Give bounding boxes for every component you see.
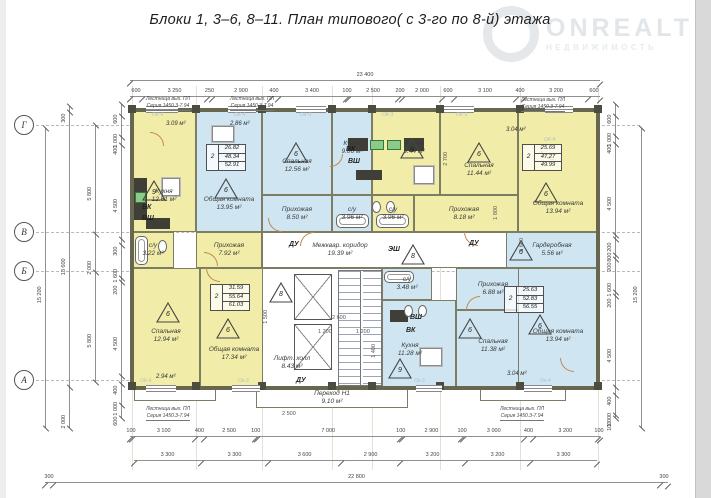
inner-dimension-label: 1 200 bbox=[356, 330, 370, 336]
dimension-label: 13 600 bbox=[62, 258, 68, 275]
dimension-label: 3 200 bbox=[426, 453, 440, 459]
shaft-tag: ДУ bbox=[289, 241, 299, 248]
dimension-label: 3 300 bbox=[228, 453, 242, 459]
fixture-win bbox=[524, 385, 552, 392]
dimension-label: 3 400 bbox=[305, 89, 319, 95]
dimension-label: 23 400 bbox=[357, 73, 374, 79]
window-mark-tag: ОК-3 bbox=[382, 113, 393, 118]
shaft-tag: ВШ bbox=[348, 158, 360, 165]
dimension-label: 5 800 bbox=[88, 334, 94, 348]
fixture-win bbox=[232, 385, 260, 392]
inner-dimension-label: 2 600 bbox=[332, 316, 346, 322]
shaft-tag: ВК bbox=[346, 146, 355, 153]
window-mark-tag: ОК-4 bbox=[544, 138, 555, 143]
dimension-label: 4 500 bbox=[608, 197, 614, 211]
apartment-number-triangle: 8 bbox=[269, 282, 293, 303]
apartment-number-triangle: 6 bbox=[214, 178, 238, 199]
room-label-su-396b: с/у3.96 м² bbox=[382, 205, 403, 221]
room-label-su-396a: с/у3.96 м² bbox=[341, 205, 362, 221]
grid-axis-В: В bbox=[14, 222, 34, 242]
window-mark-tag: ОК-3 bbox=[456, 113, 467, 118]
inner-dimension-label: 2 500 bbox=[282, 412, 296, 418]
stair-series-note: Лестница вых. ПЛСерия 1450.3-7.94 bbox=[500, 406, 544, 421]
room-label-perehod-910: Переход Н19.10 м² bbox=[314, 390, 350, 406]
plan-canvas: ГВБАКухня12.61 м²Общая комната13.95 м²Сп… bbox=[0, 0, 711, 498]
room-label-hall-818: Прихожая8.18 м² bbox=[449, 205, 479, 221]
dimension-column: 15 200 bbox=[36, 128, 46, 428]
apartment-number-triangle: 6 bbox=[467, 142, 491, 163]
apartment-number-triangle: 6 bbox=[284, 142, 308, 163]
drawing-sheet: Блоки 1, 3–6, 8–11. План типового( с 3-г… bbox=[0, 0, 711, 498]
shaft-tag: ВК bbox=[142, 204, 151, 211]
dimension-label: 600 bbox=[589, 89, 598, 95]
stair-series-note: Лестница вых. ПЛСерия 1450.3-7.94 bbox=[146, 406, 190, 421]
fixture-table bbox=[420, 348, 442, 366]
room-label-hall-850: Прихожая8.50 м² bbox=[282, 205, 312, 221]
dimension-label: 5 800 bbox=[88, 187, 94, 201]
fixture-sink bbox=[387, 140, 401, 150]
room-label-corridor-1939: Межквар. коридор19.39 м² bbox=[312, 242, 367, 258]
dimension-column: 5 8002 0005 800 bbox=[86, 125, 96, 382]
wall-pier bbox=[328, 105, 336, 113]
dimension-row: 1003 1004002 5001007 0001002 9001003 000… bbox=[130, 428, 600, 437]
stair-series-note: Лестница вых. ПЛСерия 1450.3-7.94 bbox=[230, 96, 274, 111]
grid-axis-Г: Г bbox=[14, 115, 34, 135]
dimension-label: 600 bbox=[131, 89, 140, 95]
fixture-elevator bbox=[294, 274, 332, 320]
dimension-label: 3 300 bbox=[161, 453, 175, 459]
apartment-number-triangle: 6 bbox=[216, 318, 240, 339]
dimension-label: 2 000 bbox=[62, 415, 68, 429]
shaft-tag: ВШ bbox=[410, 314, 422, 321]
wall-pier bbox=[128, 105, 136, 113]
dimension-label: 4 500 bbox=[114, 336, 120, 350]
apartment-area-stamp: 226.8248.3452.91 bbox=[206, 144, 246, 171]
dimension-label: 3 200 bbox=[491, 453, 505, 459]
wall-pier bbox=[192, 382, 200, 390]
fixture-steps bbox=[338, 270, 382, 386]
window-mark-tag: ОК-4 bbox=[140, 379, 151, 384]
shaft-tag: ДУ bbox=[469, 240, 479, 247]
wall-pier bbox=[368, 105, 376, 113]
wall-pier bbox=[328, 382, 336, 390]
dimension-row: 6003 2502502 9004003 4001002 5002002 000… bbox=[130, 88, 600, 97]
dimension-row: 3 3003 3003 6002 9003 2003 2003 300 bbox=[134, 452, 597, 461]
dimension-column: 15 200 bbox=[632, 128, 642, 428]
stair-series-note: Лестница вых. ПЛСерия 1450.3-7.94 bbox=[521, 97, 565, 112]
shaft-tag: ДУ bbox=[296, 377, 306, 384]
sheet-edge-left bbox=[0, 0, 6, 498]
dimension-label: 100 bbox=[608, 422, 614, 431]
dimension-label: 15 200 bbox=[634, 286, 640, 303]
dimension-label: 2 500 bbox=[222, 429, 236, 435]
apartment-number-triangle: 6 bbox=[528, 314, 552, 335]
dimension-label: 2 900 bbox=[234, 89, 248, 95]
window-mark-tag: Ок-4 bbox=[540, 379, 551, 384]
room-label-wardrobe-556: Гардеробная5.56 м² bbox=[532, 242, 571, 258]
inner-dimension-label: 1 800 bbox=[494, 206, 500, 220]
dimension-label: 3 200 bbox=[558, 429, 572, 435]
room-label-hall-792: Прихожая7.92 м² bbox=[214, 242, 244, 258]
apartment-number-triangle: 9 bbox=[142, 180, 166, 201]
stair-series-note: Лестница вых. ПЛСерия 1450.3-7.94 bbox=[146, 96, 190, 111]
dimension-label: 3 200 bbox=[549, 89, 563, 95]
wall-pier bbox=[368, 382, 376, 390]
dimension-label: 2 900 bbox=[364, 453, 378, 459]
dimension-label: 3 250 bbox=[168, 89, 182, 95]
sheet-edge-right bbox=[695, 0, 711, 498]
fixture-dark bbox=[356, 170, 382, 180]
room-label-bedroom-1294: Спальная12.94 м² bbox=[151, 328, 181, 344]
inner-dimension-label: 1 600 bbox=[520, 238, 526, 252]
inner-dimension-label: 1 500 bbox=[264, 310, 270, 324]
dimension-label: 22 800 bbox=[348, 475, 365, 481]
fixture-sink bbox=[370, 140, 384, 150]
dimension-row: 30022 800300 bbox=[45, 474, 668, 483]
window-mark-tag: ОК-4 bbox=[234, 113, 245, 118]
dimension-label: 2 000 bbox=[415, 89, 429, 95]
dimension-column: 6001 0004004 5003001 6002004 5004001 000… bbox=[112, 104, 122, 418]
wall-pier bbox=[516, 382, 524, 390]
dimension-column: 30013 6002 000 bbox=[60, 106, 70, 428]
inner-dimension-label: 2 700 bbox=[444, 152, 450, 166]
room-label-lift-hall-843: Лифт. холл8.43 м² bbox=[274, 355, 310, 371]
apartment-area-stamp: 225.6947.2749.99 bbox=[522, 144, 562, 171]
fixture-table bbox=[414, 166, 434, 184]
apartment-number-triangle: 6 bbox=[156, 302, 180, 323]
dimension-column: 6001 0004004 5002008002001 6002004 50040… bbox=[606, 104, 616, 418]
window-mark-tag: Ок-3 bbox=[238, 379, 249, 384]
wall-pier bbox=[594, 382, 602, 390]
balcony-area-label: 2.94 м² bbox=[156, 374, 175, 380]
grid-axis-А: А bbox=[14, 370, 34, 390]
inner-dimension-label: 1 200 bbox=[318, 330, 332, 336]
watermark-subtitle: НЕДВИЖИМОСТЬ bbox=[546, 44, 693, 52]
room-label-living-1734: Общая комната17.34 м² bbox=[209, 346, 260, 362]
wall-pier bbox=[436, 105, 444, 113]
dimension-label: 3 100 bbox=[157, 429, 171, 435]
balcony-area-label: 3.04 м² bbox=[506, 127, 525, 133]
dimension-label: 600 bbox=[114, 416, 120, 425]
apartment-number-triangle: 6 bbox=[458, 318, 482, 339]
dimension-row: 23 400 bbox=[130, 72, 600, 81]
room-label-su-348: с/у3.48 м² bbox=[396, 276, 417, 292]
balcony-area-label: 3.09 м² bbox=[166, 121, 185, 127]
dimension-label: 300 bbox=[659, 475, 668, 481]
wall-pier bbox=[594, 105, 602, 113]
dimension-label: 2 500 bbox=[366, 89, 380, 95]
fixture-win bbox=[416, 385, 442, 392]
room-label-bedroom-1144: Спальная11.44 м² bbox=[464, 162, 494, 178]
dimension-label: 3 300 bbox=[557, 453, 571, 459]
dimension-label: 3 100 bbox=[478, 89, 492, 95]
grid-axis-Б: Б bbox=[14, 261, 34, 281]
window-mark-tag: ОК-4 bbox=[152, 113, 163, 118]
dimension-label: 3 000 bbox=[487, 429, 501, 435]
dimension-label: 3 600 bbox=[298, 453, 312, 459]
balcony-area-label: 2.86 м² bbox=[230, 121, 249, 127]
shaft-tag: ВК bbox=[406, 327, 415, 334]
dimension-label: 7 000 bbox=[321, 429, 335, 435]
room-label-bedroom-1138: Спальная11.38 м² bbox=[478, 338, 508, 354]
shaft-tag: ЭШ bbox=[388, 246, 400, 253]
room-label-kitchen-1128: Кухня11.28 м² bbox=[398, 342, 422, 358]
fixture-wc bbox=[372, 201, 381, 213]
shaft-tag: ВШ bbox=[142, 215, 154, 222]
inner-dimension-label: 1 400 bbox=[372, 344, 378, 358]
window-mark-tag: Ок-3 bbox=[414, 379, 425, 384]
drawing-title: Блоки 1, 3–6, 8–11. План типового( с 3-г… bbox=[40, 12, 660, 29]
apartment-number-triangle: 8 bbox=[401, 244, 425, 265]
dimension-label: 15 200 bbox=[38, 286, 44, 303]
wall-pier bbox=[128, 382, 136, 390]
dimension-label: 100 bbox=[594, 429, 603, 435]
wall-pier bbox=[192, 105, 200, 113]
dimension-label: 2 900 bbox=[425, 429, 439, 435]
room-label-su-322: с/у3.22 м² bbox=[142, 242, 163, 258]
apartment-number-triangle: 9 bbox=[388, 358, 412, 379]
dimension-label: 4 500 bbox=[608, 349, 614, 363]
dimension-label: 600 bbox=[443, 89, 452, 95]
grid-column-line bbox=[598, 86, 599, 470]
apartment-area-stamp: 231.5955.6461.03 bbox=[210, 284, 250, 311]
fixture-win bbox=[146, 385, 176, 392]
fixture-table bbox=[212, 126, 234, 142]
apartment-area-stamp: 225.6352.8356.55 bbox=[504, 286, 544, 313]
window-mark-tag: ОК-3 bbox=[300, 113, 311, 118]
dimension-label: 4 500 bbox=[114, 199, 120, 213]
apartment-number-triangle: 9 bbox=[400, 138, 424, 159]
balcony-area-label: 3.04 м² bbox=[507, 371, 526, 377]
apartment-number-triangle: 6 bbox=[534, 182, 558, 203]
